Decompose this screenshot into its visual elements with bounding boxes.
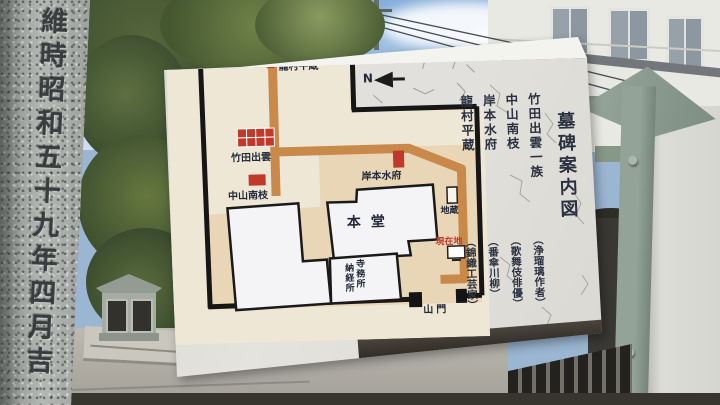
label-jimusho: 寺務所 [353, 259, 365, 293]
legend-panel: 墓碑案内図 竹田出雲一族 （浄瑠璃作者） 中山南枝 （歌舞伎俳優） 岸本水府 （… [456, 91, 584, 339]
legend-desc: （浄瑠璃作者） [531, 234, 549, 308]
legend-name: 龍村平蔵 [456, 94, 477, 153]
label-temple-office: 寺務所 納経所 [342, 259, 365, 294]
legend-name: 竹田出雲一族 [524, 92, 546, 180]
stone-pillar-edge [0, 0, 20, 405]
lantern-opening [106, 299, 128, 333]
legend-name: 中山南枝 [501, 93, 522, 152]
legend-name: 岸本水府 [479, 94, 500, 153]
label-main-hall: 本堂 [347, 211, 396, 232]
label-jizo: 地蔵 [440, 203, 458, 216]
takeda-grave-grid [237, 128, 274, 147]
legend-desc: （番傘川柳） [486, 236, 503, 299]
post-bolt [628, 156, 637, 165]
legend-desc: （歌舞伎俳優） [508, 235, 526, 309]
label-kishimoto: 岸本水府 [361, 166, 401, 182]
stone-lantern-body [102, 293, 156, 334]
photo-temple-map-sign: { "pillar": { "inscription": "維時昭和五十九年四月… [0, 0, 720, 405]
office-building [330, 254, 401, 304]
compass-n-label: N [363, 71, 373, 85]
label-takeda: 竹田出雲 [231, 148, 271, 164]
legend-desc: （錦織工芸家） [463, 236, 481, 310]
gate-post [409, 292, 422, 307]
white-wall-panel [646, 106, 720, 405]
label-nokyosho: 納経所 [342, 263, 354, 293]
jizo-marker [447, 187, 457, 203]
ground-shadow [0, 393, 720, 405]
temple-grounds-map: 龍村平蔵 竹田出雲 中山南枝 岸本水府 地蔵 本堂 寺務所 納経所 現在地 山門… [166, 42, 490, 345]
label-you-are-here: 現在地 [435, 234, 462, 248]
nakayama-grave-marker [248, 174, 265, 185]
kishimoto-grave-marker [393, 150, 404, 167]
label-main-gate: 山門 [423, 300, 449, 316]
guide-map-signboard: 龍村平蔵 竹田出雲 中山南枝 岸本水府 地蔵 本堂 寺務所 納経所 現在地 山門… [150, 25, 615, 390]
sign-title: 墓碑案内図 [551, 111, 581, 222]
label-nakayama: 中山南枝 [228, 186, 268, 202]
